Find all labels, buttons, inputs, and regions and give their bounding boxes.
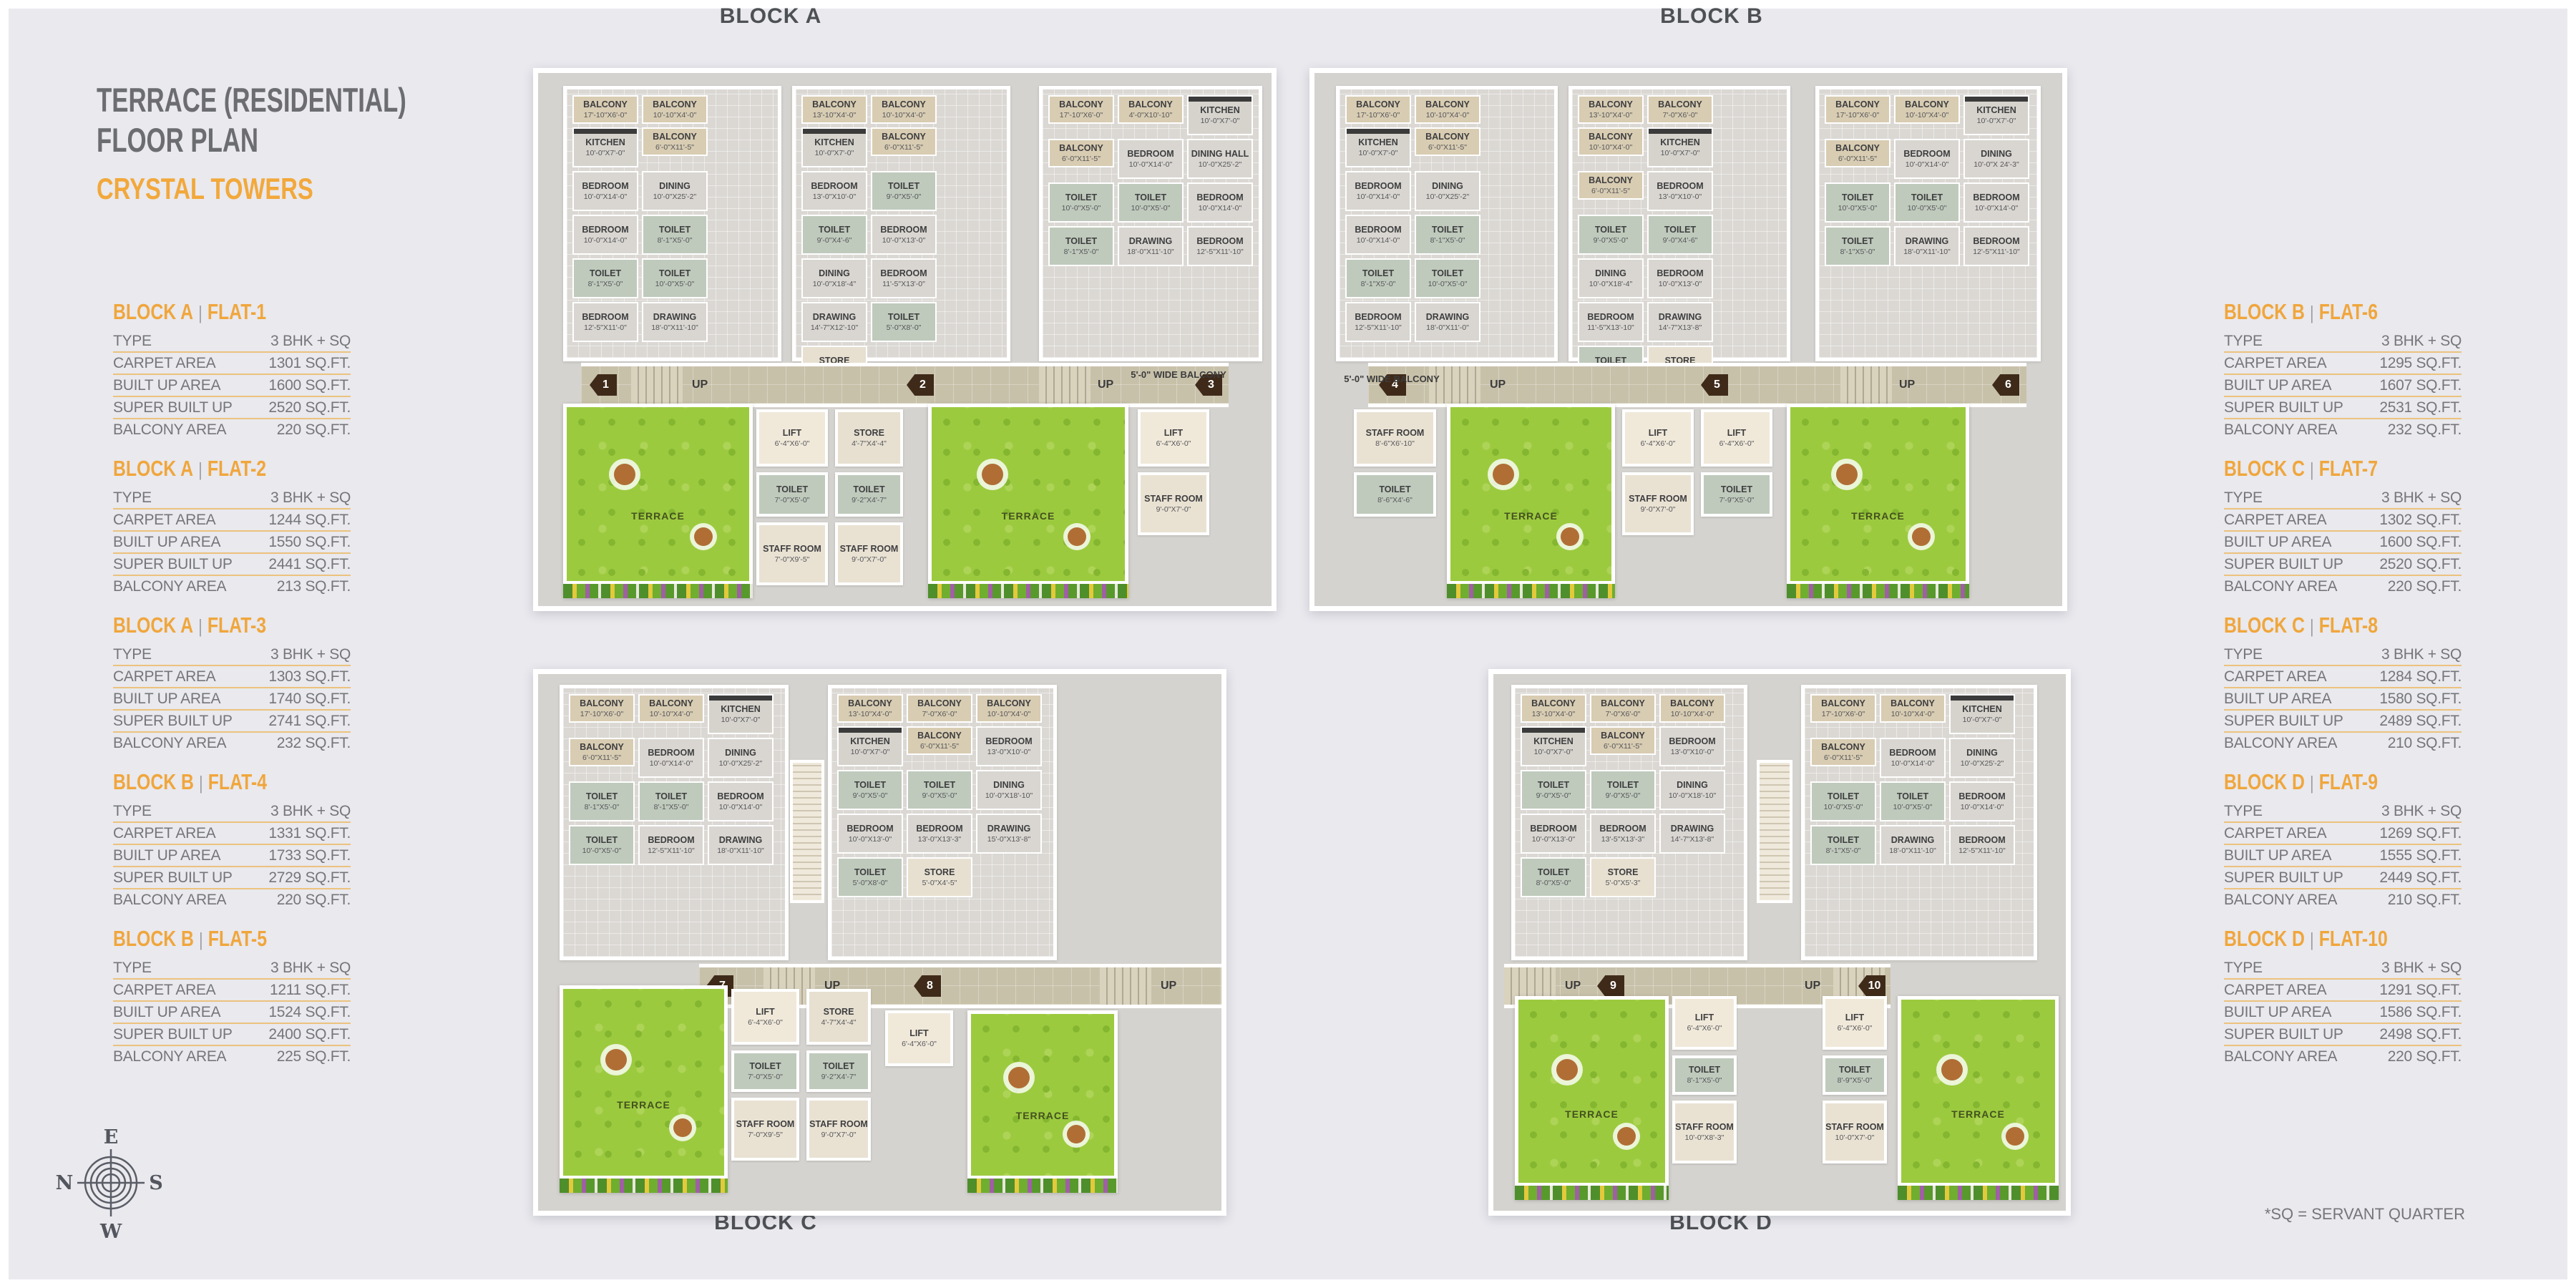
room-name: STAFF ROOM bbox=[1825, 1123, 1884, 1132]
room-dimensions: 6'-0"X11'-5" bbox=[1062, 155, 1101, 163]
room-dimensions: 9'-0"X7'-0" bbox=[1156, 505, 1191, 514]
staircase bbox=[631, 366, 683, 404]
room-name: BALCONY bbox=[812, 100, 857, 109]
room-dimensions: 6'-4"X6'-0" bbox=[1641, 439, 1676, 448]
room-toilet: TOILET10'-0"X5'-0" bbox=[1880, 781, 1946, 821]
room-room: DRAWING14'-7"X12'-10" bbox=[801, 302, 867, 342]
room-dimensions: 10'-0"X14'-0" bbox=[584, 236, 628, 245]
room-store: STORE5'-0"X4'-5" bbox=[907, 857, 972, 897]
core-toilet: TOILET9'-2"X4'-7" bbox=[835, 472, 903, 517]
spec-row: CARPET AREA1211 SQ.FT. bbox=[113, 980, 351, 1002]
spec-row-label: BUILT UP AREA bbox=[113, 847, 220, 864]
spec-row-value: 1607 SQ.FT. bbox=[2379, 377, 2462, 394]
room-dimensions: 10'-10"X4'-0" bbox=[987, 710, 1031, 718]
spec-row: BALCONY AREA213 SQ.FT. bbox=[113, 576, 351, 597]
spec-row: BUILT UP AREA1555 SQ.FT. bbox=[2224, 845, 2462, 867]
room-name: KITCHEN bbox=[1358, 138, 1398, 147]
room-name: TOILET bbox=[1607, 781, 1639, 790]
terrace-label: TERRACE bbox=[1002, 510, 1055, 522]
room-name: BALCONY bbox=[1059, 100, 1103, 109]
room-dimensions: 10'-0"X14'-0" bbox=[1199, 204, 1242, 213]
room-name: BEDROOM bbox=[1127, 150, 1174, 159]
spec-row: CARPET AREA1303 SQ.FT. bbox=[113, 666, 351, 688]
room-dimensions: 9'-0"X5'-0" bbox=[1536, 791, 1571, 800]
up-stairs-label: UP bbox=[692, 379, 708, 391]
spec-row: BALCONY AREA220 SQ.FT. bbox=[113, 889, 351, 910]
room-name: TOILET bbox=[749, 1062, 781, 1071]
room-room: BEDROOM10'-0"X14'-0" bbox=[1949, 781, 2015, 821]
room-kitchen: KITCHEN10'-0"X7'-0" bbox=[801, 127, 867, 167]
room-name: TOILET bbox=[888, 182, 919, 191]
room-name: BALCONY bbox=[1601, 731, 1645, 741]
room-dimensions: 13'-10"X4'-0" bbox=[1532, 710, 1576, 718]
room-dimensions: 18'-0"X11'-10" bbox=[1889, 847, 1936, 855]
room-dimensions: 6'-0"X11'-5" bbox=[1824, 753, 1863, 762]
room-room: DINING10'-0"X25'-2" bbox=[1949, 738, 2015, 778]
spec-row-value: 225 SQ.FT. bbox=[277, 1048, 351, 1065]
room-name: TOILET bbox=[590, 269, 621, 278]
room-room: DRAWING18'-0"X11'-10" bbox=[1880, 825, 1946, 865]
flat-spec-table: BLOCK C|FLAT-8TYPE3 BHK + SQCARPET AREA1… bbox=[2224, 613, 2462, 753]
room-balcony: BALCONY13'-10"X4'-0" bbox=[1521, 694, 1586, 723]
spec-row-value: 1244 SQ.FT. bbox=[268, 512, 351, 529]
room-name: BEDROOM bbox=[811, 182, 857, 191]
spec-row: CARPET AREA1284 SQ.FT. bbox=[2224, 666, 2462, 688]
spec-row-value: 1586 SQ.FT. bbox=[2379, 1004, 2462, 1021]
room-dimensions: 13'-0"X10'-0" bbox=[813, 192, 857, 201]
room-room: DRAWING18'-0"X11'-0" bbox=[1415, 302, 1480, 342]
spec-row-value: 1291 SQ.FT. bbox=[2379, 982, 2462, 999]
terrace-label: TERRACE bbox=[631, 510, 685, 522]
core-lift: LIFT6'-4"X6'-0" bbox=[1701, 409, 1772, 467]
room-dimensions: 11'-5"X13'-10" bbox=[1587, 323, 1634, 332]
room-name: BALCONY bbox=[1128, 100, 1173, 109]
spec-row-value: 2520 SQ.FT. bbox=[2379, 556, 2462, 573]
spec-row-value: 3 BHK + SQ bbox=[270, 489, 351, 507]
room-name: BALCONY bbox=[1425, 100, 1470, 109]
spec-row-value: 3 BHK + SQ bbox=[2381, 960, 2462, 977]
room-balcony: BALCONY17'-10"X6'-0" bbox=[1345, 95, 1411, 124]
spec-row-label: BUILT UP AREA bbox=[113, 534, 220, 551]
spec-row: TYPE3 BHK + SQ bbox=[2224, 801, 2462, 823]
spec-row-label: CARPET AREA bbox=[2224, 668, 2326, 686]
room-toilet: TOILET8'-1"X5'-0" bbox=[572, 258, 638, 298]
room-room: BEDROOM10'-0"X14'-0" bbox=[1894, 139, 1960, 179]
flat-table-header: BLOCK B|FLAT-5 bbox=[113, 926, 303, 952]
core-store: STORE4'-7"X4'-4" bbox=[835, 409, 903, 467]
room-name: BEDROOM bbox=[582, 225, 628, 235]
room-dimensions: 18'-0"X11'-10" bbox=[1127, 248, 1174, 256]
spec-row: CARPET AREA1244 SQ.FT. bbox=[113, 509, 351, 532]
room-room: BEDROOM12'-5"X11'-10" bbox=[1187, 226, 1253, 266]
room-name: BALCONY bbox=[649, 699, 693, 708]
room-toilet: TOILET10'-0"X5'-0" bbox=[1810, 781, 1876, 821]
apartment-unit: BALCONY13'-10"X4'-0"BALCONY7'-0"X6'-0"BA… bbox=[1568, 86, 1790, 361]
unit-number-badge: 8 bbox=[914, 975, 941, 997]
flat-table-header: BLOCK A|FLAT-1 bbox=[113, 299, 303, 326]
room-dimensions: 10'-0"X7'-0" bbox=[1661, 149, 1700, 157]
room-dimensions: 6'-4"X6'-0" bbox=[748, 1018, 783, 1027]
room-room: DRAWING18'-0"X11'-10" bbox=[708, 825, 774, 865]
room-kitchen: KITCHEN10'-0"X7'-0" bbox=[1187, 95, 1253, 135]
spec-row: BALCONY AREA220 SQ.FT. bbox=[2224, 1046, 2462, 1067]
room-room: BEDROOM13'-5"X13'-3" bbox=[1590, 814, 1656, 854]
core-toilet: TOILET7'-9"X5'-0" bbox=[1701, 472, 1772, 517]
room-name: LIFT bbox=[1649, 429, 1667, 438]
flat-table-separator: | bbox=[194, 929, 208, 950]
spec-row-value: 220 SQ.FT. bbox=[2388, 1048, 2462, 1065]
room-name: TOILET bbox=[586, 792, 618, 801]
room-balcony: BALCONY17'-10"X6'-0" bbox=[1048, 95, 1114, 124]
spec-row: TYPE3 BHK + SQ bbox=[113, 331, 351, 353]
spec-row-value: 1211 SQ.FT. bbox=[270, 982, 351, 999]
room-dimensions: 7'-0"X5'-0" bbox=[775, 496, 810, 504]
up-stairs-label: UP bbox=[1098, 379, 1113, 391]
compass-left-letter: N bbox=[56, 1172, 74, 1194]
room-room: DINING10'-0"X18'-4" bbox=[1578, 258, 1644, 298]
room-name: BEDROOM bbox=[1903, 150, 1950, 159]
room-balcony: BALCONY4'-0"X10'-10" bbox=[1118, 95, 1184, 124]
room-name: STAFF ROOM bbox=[840, 545, 899, 554]
room-dimensions: 14'-7"X12'-10" bbox=[811, 323, 858, 332]
flat-table-block-name: BLOCK C bbox=[2224, 613, 2305, 638]
wide-balcony-label: 5'-0" WIDE BALCONY bbox=[1103, 369, 1254, 380]
room-name: LIFT bbox=[756, 1008, 774, 1017]
room-name: BALCONY bbox=[1905, 100, 1949, 109]
apartment-unit: BALCONY17'-10"X6'-0"BALCONY10'-10"X4'-0"… bbox=[560, 685, 789, 960]
spec-row-label: TYPE bbox=[2224, 489, 2263, 507]
spec-row-value: 1284 SQ.FT. bbox=[2379, 668, 2462, 686]
room-dimensions: 10'-0"X14'-0" bbox=[719, 803, 763, 811]
room-toilet: TOILET10'-0"X5'-0" bbox=[569, 825, 635, 865]
room-name: BEDROOM bbox=[847, 824, 893, 834]
room-name: DRAWING bbox=[1129, 237, 1172, 246]
room-room: BEDROOM13'-0"X10'-0" bbox=[976, 726, 1042, 766]
room-dimensions: 13'-0"X10'-0" bbox=[1659, 192, 1702, 201]
room-balcony: BALCONY10'-10"X4'-0" bbox=[1880, 694, 1946, 723]
room-name: TOILET bbox=[776, 485, 808, 494]
room-name: TOILET bbox=[1842, 237, 1873, 246]
room-dimensions: 10'-0"X25'-2" bbox=[1199, 160, 1242, 169]
room-dimensions: 10'-0"X14'-0" bbox=[1975, 204, 2019, 213]
room-balcony: BALCONY6'-0"X11'-5" bbox=[569, 738, 635, 766]
flat-table-separator: | bbox=[193, 459, 208, 480]
flat-table-header: BLOCK C|FLAT-8 bbox=[2224, 613, 2414, 639]
spec-row-value: 1550 SQ.FT. bbox=[268, 534, 351, 551]
room-dimensions: 10'-0"X14'-0" bbox=[584, 192, 628, 201]
spec-row-label: BUILT UP AREA bbox=[2224, 377, 2331, 394]
room-name: LIFT bbox=[1845, 1013, 1864, 1023]
apartment-unit: BALCONY13'-10"X4'-0"BALCONY7'-0"X6'-0"BA… bbox=[828, 685, 1057, 960]
staircase bbox=[1757, 760, 1792, 903]
room-name: TOILET bbox=[1721, 485, 1752, 494]
room-dimensions: 12'-5"X11'-0" bbox=[584, 323, 627, 332]
core-lift: LIFT6'-4"X6'-0" bbox=[1622, 409, 1694, 467]
spec-row-value: 3 BHK + SQ bbox=[2381, 803, 2462, 820]
spec-row: SUPER BUILT UP2520 SQ.FT. bbox=[2224, 554, 2462, 576]
room-dimensions: 10'-0"X5'-0" bbox=[1838, 204, 1878, 213]
up-stairs-label: UP bbox=[1899, 379, 1915, 391]
room-dimensions: 6'-4"X6'-0" bbox=[902, 1040, 937, 1048]
room-dimensions: 10'-0"X5'-0" bbox=[1062, 204, 1101, 213]
room-name: TOILET bbox=[1595, 225, 1626, 235]
room-name: LIFT bbox=[1695, 1013, 1714, 1023]
flat-table-flat-name: FLAT-6 bbox=[2319, 299, 2378, 324]
spec-row-value: 1303 SQ.FT. bbox=[268, 668, 351, 686]
room-toilet: TOILET8'-1"X5'-0" bbox=[1825, 226, 1890, 266]
room-name: TOILET bbox=[854, 868, 886, 877]
room-name: STORE bbox=[1608, 868, 1639, 877]
room-room: BEDROOM10'-0"X14'-0" bbox=[1345, 171, 1411, 211]
room-toilet: TOILET9'-0"X5'-0" bbox=[837, 770, 903, 810]
flat-table-flat-name: FLAT-8 bbox=[2319, 613, 2378, 638]
room-dimensions: 9'-0"X5'-0" bbox=[1594, 236, 1629, 245]
room-name: BEDROOM bbox=[1657, 269, 1703, 278]
room-dimensions: 17'-10"X6'-0" bbox=[584, 111, 628, 119]
room-room: DINING10'-0"X18'-10" bbox=[976, 770, 1042, 810]
core-staff: STAFF ROOM9'-0"X7'-0" bbox=[806, 1098, 871, 1161]
room-balcony: BALCONY17'-10"X6'-0" bbox=[1825, 95, 1890, 124]
room-balcony: BALCONY13'-10"X4'-0" bbox=[1578, 95, 1644, 124]
room-room: BEDROOM13'-0"X10'-0" bbox=[1659, 726, 1725, 766]
spec-row-value: 210 SQ.FT. bbox=[2388, 892, 2462, 909]
room-dimensions: 10'-0"X14'-0" bbox=[1357, 192, 1400, 201]
core-toilet: TOILET8'-1"X5'-0" bbox=[1672, 1055, 1737, 1095]
terrace-label: TERRACE bbox=[1016, 1110, 1070, 1121]
room-name: BALCONY bbox=[1821, 699, 1865, 708]
room-dimensions: 7'-0"X9'-5" bbox=[775, 555, 810, 564]
room-dimensions: 9'-2"X4'-7" bbox=[852, 496, 887, 504]
room-name: TOILET bbox=[853, 485, 884, 494]
unit-number-badge: 6 bbox=[1992, 374, 2019, 396]
room-dimensions: 17'-10"X6'-0" bbox=[580, 710, 624, 718]
staircase bbox=[1429, 366, 1480, 404]
spec-row: SUPER BUILT UP2441 SQ.FT. bbox=[113, 554, 351, 576]
room-room: DINING10'-0"X25'-2" bbox=[642, 171, 708, 211]
room-dimensions: 9'-0"X7'-0" bbox=[1641, 505, 1676, 514]
core-staff: STAFF ROOM9'-0"X7'-0" bbox=[1138, 472, 1209, 535]
room-dimensions: 6'-4"X6'-0" bbox=[1687, 1024, 1722, 1033]
spec-row-label: TYPE bbox=[113, 960, 152, 977]
room-name: BEDROOM bbox=[1355, 225, 1401, 235]
room-room: BEDROOM10'-0"X14'-0" bbox=[1345, 215, 1411, 255]
unit-number-badge: 2 bbox=[907, 374, 934, 396]
room-balcony: BALCONY10'-10"X4'-0" bbox=[976, 694, 1042, 723]
room-dimensions: 8'-1"X5'-0" bbox=[585, 803, 620, 811]
room-room: DINING HALL10'-0"X25'-2" bbox=[1187, 139, 1253, 179]
room-dimensions: 10'-0"X7'-0" bbox=[1977, 117, 2016, 125]
room-toilet: TOILET8'-1"X5'-0" bbox=[1345, 258, 1411, 298]
room-name: DRAWING bbox=[1426, 313, 1469, 322]
spec-row-value: 1600 SQ.FT. bbox=[268, 377, 351, 394]
room-name: BALCONY bbox=[1059, 144, 1103, 153]
spec-row-value: 210 SQ.FT. bbox=[2388, 735, 2462, 752]
spec-row-label: BALCONY AREA bbox=[113, 735, 226, 752]
room-balcony: BALCONY10'-10"X4'-0" bbox=[638, 694, 704, 723]
room-name: BALCONY bbox=[1890, 699, 1935, 708]
flat-table-flat-name: FLAT-5 bbox=[208, 926, 267, 951]
room-name: BEDROOM bbox=[916, 824, 962, 834]
room-toilet: TOILET10'-0"X5'-0" bbox=[1118, 182, 1184, 223]
flower-bed bbox=[1447, 581, 1615, 598]
room-dimensions: 6'-0"X11'-5" bbox=[655, 143, 694, 152]
spec-row-label: TYPE bbox=[113, 646, 152, 663]
room-toilet: TOILET8'-0"X5'-0" bbox=[1521, 857, 1586, 897]
room-dimensions: 10'-0"X5'-0" bbox=[1428, 280, 1468, 288]
spec-row: CARPET AREA1291 SQ.FT. bbox=[2224, 980, 2462, 1002]
room-name: KITCHEN bbox=[850, 737, 890, 746]
room-name: DRAWING bbox=[1659, 313, 1702, 322]
spec-row: TYPE3 BHK + SQ bbox=[113, 487, 351, 509]
flat-table-separator: | bbox=[193, 302, 208, 323]
spec-row-label: SUPER BUILT UP bbox=[2224, 869, 2343, 887]
room-name: STAFF ROOM bbox=[1675, 1123, 1734, 1132]
room-room: BEDROOM10'-0"X14'-0" bbox=[1963, 182, 2029, 223]
room-dimensions: 10'-0"X25'-2" bbox=[1961, 759, 2004, 768]
flat-table-block-name: BLOCK B bbox=[113, 926, 194, 951]
flat-table-separator: | bbox=[2305, 772, 2319, 794]
room-dimensions: 12'-5"X11'-10" bbox=[1958, 847, 2006, 855]
apartment-unit: BALCONY17'-10"X6'-0"BALCONY10'-10"X4'-0"… bbox=[1815, 86, 2041, 361]
room-dimensions: 7'-0"X9'-5" bbox=[748, 1131, 783, 1139]
room-toilet: TOILET9'-0"X5'-0" bbox=[871, 171, 937, 211]
flat-table-block-name: BLOCK A bbox=[113, 613, 193, 638]
room-dimensions: 9'-0"X7'-0" bbox=[821, 1131, 857, 1139]
spec-row-label: BALCONY AREA bbox=[113, 892, 226, 909]
flat-table-flat-name: FLAT-2 bbox=[208, 456, 266, 481]
room-name: BEDROOM bbox=[717, 792, 763, 801]
room-dimensions: 10'-0"X18'-10" bbox=[1669, 791, 1716, 800]
apartment-unit: BALCONY13'-10"X4'-0"BALCONY7'-0"X6'-0"BA… bbox=[1511, 685, 1747, 960]
room-store: STORE5'-0"X5'-3" bbox=[1590, 857, 1656, 897]
room-name: BEDROOM bbox=[1958, 836, 2005, 845]
room-dimensions: 6'-4"X6'-0" bbox=[775, 439, 810, 448]
flat-table-flat-name: FLAT-10 bbox=[2319, 926, 2388, 951]
terrace-garden: TERRACE bbox=[928, 404, 1128, 598]
room-balcony: BALCONY6'-0"X11'-5" bbox=[1810, 738, 1876, 766]
flat-table-separator: | bbox=[2305, 615, 2319, 637]
spec-row-label: SUPER BUILT UP bbox=[2224, 399, 2343, 416]
room-dimensions: 10'-0"X18'-10" bbox=[985, 791, 1033, 800]
spec-row-value: 220 SQ.FT. bbox=[2388, 578, 2462, 595]
core-toilet: TOILET7'-0"X5'-0" bbox=[731, 1050, 799, 1092]
room-toilet: TOILET9'-0"X5'-0" bbox=[1578, 215, 1644, 255]
spec-row: TYPE3 BHK + SQ bbox=[2224, 957, 2462, 980]
room-dimensions: 10'-0"X7'-0" bbox=[721, 716, 761, 724]
room-name: BEDROOM bbox=[880, 225, 927, 235]
room-room: DRAWING14'-7"X13'-8" bbox=[1647, 302, 1713, 342]
room-name: LIFT bbox=[1727, 429, 1746, 438]
room-name: STORE bbox=[824, 1008, 854, 1017]
spec-row: BUILT UP AREA1600 SQ.FT. bbox=[2224, 532, 2462, 554]
spec-row-label: SUPER BUILT UP bbox=[113, 556, 233, 573]
spec-row-label: CARPET AREA bbox=[113, 512, 215, 529]
spec-row-label: BUILT UP AREA bbox=[113, 691, 220, 708]
spec-row-value: 1600 SQ.FT. bbox=[2379, 534, 2462, 551]
room-dimensions: 10'-0"X18'-4" bbox=[813, 280, 857, 288]
room-dimensions: 8'-1"X5'-0" bbox=[1687, 1076, 1722, 1085]
room-name: STORE bbox=[924, 868, 955, 877]
room-dimensions: 10'-0"X14'-0" bbox=[1961, 803, 2004, 811]
room-dimensions: 10'-0"X13'-0" bbox=[1532, 835, 1576, 844]
room-toilet: TOILET5'-0"X8'-0" bbox=[871, 302, 937, 342]
spec-row-label: BALCONY AREA bbox=[2224, 892, 2337, 909]
room-name: DRAWING bbox=[653, 313, 696, 322]
room-name: TOILET bbox=[1842, 193, 1873, 203]
room-dimensions: 10'-0"X5'-0" bbox=[1893, 803, 1933, 811]
spec-row: BALCONY AREA220 SQ.FT. bbox=[113, 419, 351, 440]
spec-row: TYPE3 BHK + SQ bbox=[2224, 487, 2462, 509]
room-name: BALCONY bbox=[1356, 100, 1400, 109]
spec-row-label: TYPE bbox=[2224, 803, 2263, 820]
room-name: DINING bbox=[1432, 182, 1463, 191]
terrace-garden: TERRACE bbox=[1787, 404, 1969, 598]
room-name: DINING bbox=[993, 781, 1025, 790]
room-room: BEDROOM10'-0"X13'-0" bbox=[871, 215, 937, 255]
room-room: BEDROOM12'-5"X11'-10" bbox=[638, 825, 704, 865]
compass-right-letter: S bbox=[149, 1172, 163, 1194]
room-name: BEDROOM bbox=[1669, 737, 1715, 746]
room-dimensions: 10'-0"X18'-4" bbox=[1589, 280, 1633, 288]
core-lift: LIFT6'-4"X6'-0" bbox=[1672, 996, 1737, 1050]
core-lift: LIFT6'-4"X6'-0" bbox=[1823, 996, 1887, 1050]
room-kitchen: KITCHEN10'-0"X7'-0" bbox=[1949, 694, 2015, 734]
spec-row-label: SUPER BUILT UP bbox=[113, 1026, 233, 1043]
room-dimensions: 17'-10"X6'-0" bbox=[1822, 710, 1865, 718]
room-name: KITCHEN bbox=[585, 138, 625, 147]
core-staff: STAFF ROOM7'-0"X9'-5" bbox=[756, 522, 828, 585]
core-toilet: TOILET8'-6"X4'-6" bbox=[1354, 472, 1436, 517]
room-name: BALCONY bbox=[1658, 100, 1702, 109]
room-name: TOILET bbox=[924, 781, 955, 790]
room-dimensions: 8'-1"X5'-0" bbox=[1430, 236, 1465, 245]
room-name: TOILET bbox=[1379, 485, 1410, 494]
spec-row-label: BALCONY AREA bbox=[2224, 578, 2337, 595]
spec-row-value: 1269 SQ.FT. bbox=[2379, 825, 2462, 842]
room-room: BEDROOM10'-0"X14'-0" bbox=[1880, 738, 1946, 778]
core-toilet: TOILET7'-0"X5'-0" bbox=[756, 472, 828, 517]
terrace-label: TERRACE bbox=[1851, 510, 1905, 522]
room-room: BEDROOM13'-0"X13'-3" bbox=[907, 814, 972, 854]
flat-spec-table: BLOCK A|FLAT-3TYPE3 BHK + SQCARPET AREA1… bbox=[113, 613, 351, 753]
page-title-line1: TERRACE (RESIDENTIAL) bbox=[97, 80, 406, 120]
room-name: KITCHEN bbox=[1962, 705, 2002, 714]
room-dimensions: 8'-1"X5'-0" bbox=[1064, 248, 1099, 256]
spec-row-label: SUPER BUILT UP bbox=[113, 869, 233, 887]
room-toilet: TOILET8'-1"X5'-0" bbox=[1415, 215, 1480, 255]
room-room: DRAWING14'-7"X13'-8" bbox=[1659, 814, 1725, 854]
spec-row: CARPET AREA1269 SQ.FT. bbox=[2224, 823, 2462, 845]
room-dimensions: 4'-0"X10'-10" bbox=[1129, 111, 1173, 119]
spec-row-label: TYPE bbox=[113, 803, 152, 820]
room-name: TOILET bbox=[659, 225, 691, 235]
spec-row-label: BUILT UP AREA bbox=[113, 377, 220, 394]
room-toilet: TOILET10'-0"X5'-0" bbox=[1894, 182, 1960, 223]
core-staff: STAFF ROOM9'-0"X7'-0" bbox=[835, 522, 903, 585]
room-dimensions: 8'-1"X5'-0" bbox=[1361, 280, 1396, 288]
spec-row-value: 1733 SQ.FT. bbox=[268, 847, 351, 864]
spec-row-label: TYPE bbox=[113, 489, 152, 507]
spec-row: BALCONY AREA210 SQ.FT. bbox=[2224, 889, 2462, 910]
room-name: STAFF ROOM bbox=[1144, 494, 1203, 504]
room-dimensions: 6'-0"X11'-5" bbox=[1591, 187, 1630, 195]
core-lift: LIFT6'-4"X6'-0" bbox=[756, 409, 828, 467]
project-name: CRYSTAL TOWERS bbox=[97, 172, 423, 206]
room-room: DRAWING15'-0"X13'-8" bbox=[976, 814, 1042, 854]
room-name: TOILET bbox=[655, 792, 687, 801]
unit-number-badge: 5 bbox=[1701, 374, 1728, 396]
terrace-garden: TERRACE bbox=[967, 1010, 1118, 1193]
